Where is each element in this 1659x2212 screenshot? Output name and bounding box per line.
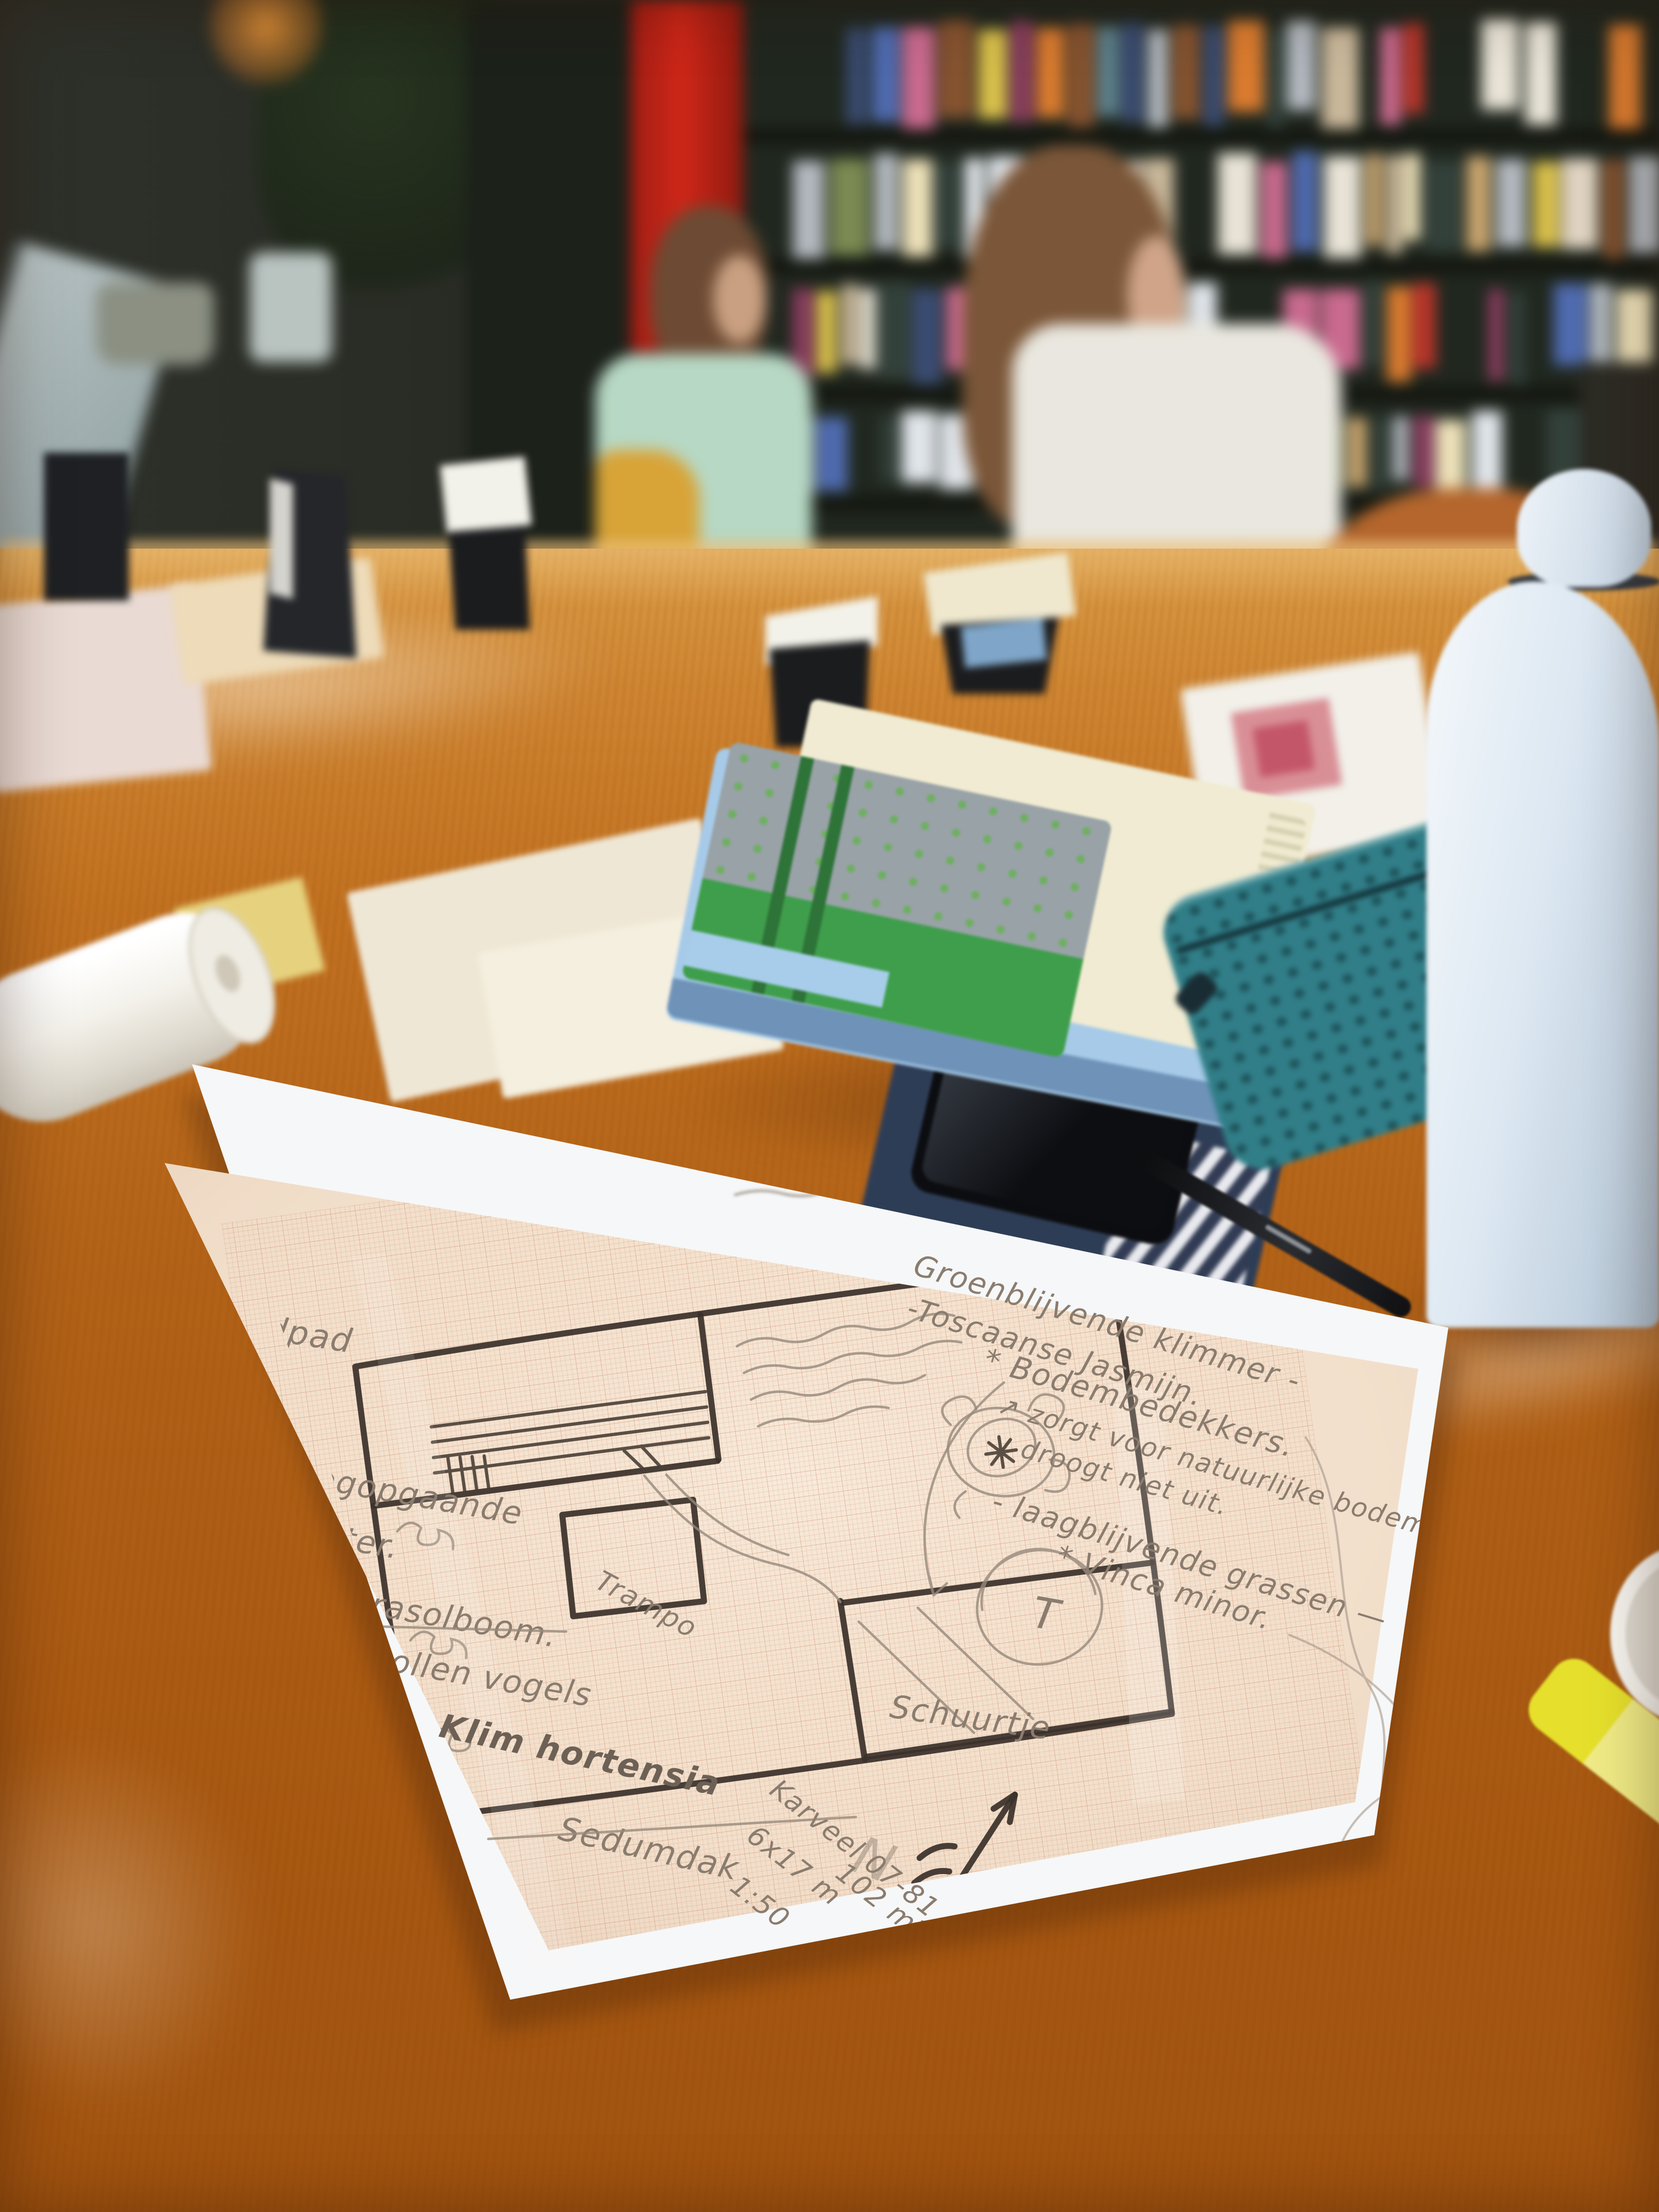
grindpad-arrow (147, 1290, 180, 1310)
parasol-star (306, 1591, 319, 1603)
garden-plan-sketch: Trampo T Schuurtje N (0, 0, 1659, 2212)
photo-library-table-scene: Trampo T Schuurtje N (0, 0, 1659, 2212)
